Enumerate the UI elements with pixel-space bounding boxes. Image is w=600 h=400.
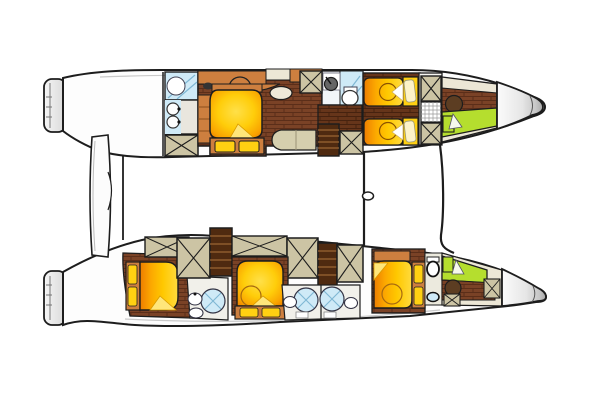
hatch-x: [300, 71, 322, 93]
hatch-x: [421, 76, 441, 101]
headboard-cushion: [414, 287, 423, 305]
shower-tray-icon: [167, 77, 185, 95]
lower-aft-head: [187, 276, 228, 320]
deck-hatch-icon: [446, 96, 463, 113]
washbasin-icon: [167, 116, 179, 128]
lower-forward-cabin: [372, 249, 442, 313]
stairs: [210, 228, 232, 276]
lower-twin-heads: [282, 285, 360, 320]
washbasin-icon: [427, 293, 439, 302]
toilet-icon: [189, 308, 203, 318]
hatch-x: [165, 135, 198, 156]
toilet-icon: [427, 262, 439, 277]
footboard-cushion: [240, 308, 258, 317]
mast-line-shackle: [363, 192, 374, 200]
toilet-icon: [342, 91, 358, 106]
upper-hull: [44, 69, 545, 157]
stairs: [318, 243, 337, 287]
footboard-cushion: [239, 141, 259, 152]
crew-locker: [443, 257, 453, 272]
hatch-x: [444, 294, 460, 306]
upper-guest-cabin: [363, 73, 420, 145]
pouf-icon: [270, 87, 292, 100]
single-berth: [364, 77, 418, 106]
deck-plan-canvas: [0, 0, 600, 400]
hatch-x: [177, 238, 210, 278]
footboard-cushion: [215, 141, 235, 152]
step-stool: [324, 312, 336, 318]
stairs: [318, 124, 339, 156]
hatch-x: [484, 279, 500, 298]
faucet-icon: [177, 107, 180, 110]
single-berth: [364, 118, 418, 145]
lower-bow: [502, 269, 546, 306]
upper-aft-head: [163, 72, 198, 156]
step-stool: [296, 312, 308, 318]
grid-escape-hatch: [421, 102, 441, 122]
toilet-icon: [284, 297, 297, 308]
catamaran-deck-plan: [0, 0, 600, 400]
footboard-cushion: [262, 308, 280, 317]
aft-platform: [90, 135, 112, 257]
vanity-desk: [198, 71, 266, 84]
headboard-cushion: [128, 287, 137, 306]
hatch-x: [340, 131, 363, 154]
sofa: [272, 130, 316, 150]
pillow-icon: [404, 79, 417, 102]
washbasin-icon: [167, 103, 179, 115]
hatch-x: [287, 238, 318, 278]
headboard-cushion: [414, 265, 423, 283]
toilet-icon: [345, 298, 358, 309]
headboard-cushion: [128, 265, 137, 284]
cabinet-x: [232, 236, 287, 256]
faucet-icon: [194, 293, 197, 296]
lower-hull: [44, 228, 546, 326]
forward-beam-line: [440, 145, 454, 253]
lower-mid-cabin: [232, 257, 288, 319]
faucet-icon: [177, 120, 180, 123]
lower-forepeak: [442, 253, 502, 306]
cabinet: [266, 69, 290, 80]
pillow-icon: [404, 120, 416, 142]
hatch-x: [421, 123, 441, 144]
hatch-x: [337, 245, 363, 282]
upper-locker-column: [419, 73, 442, 145]
wardrobe: [374, 251, 410, 261]
